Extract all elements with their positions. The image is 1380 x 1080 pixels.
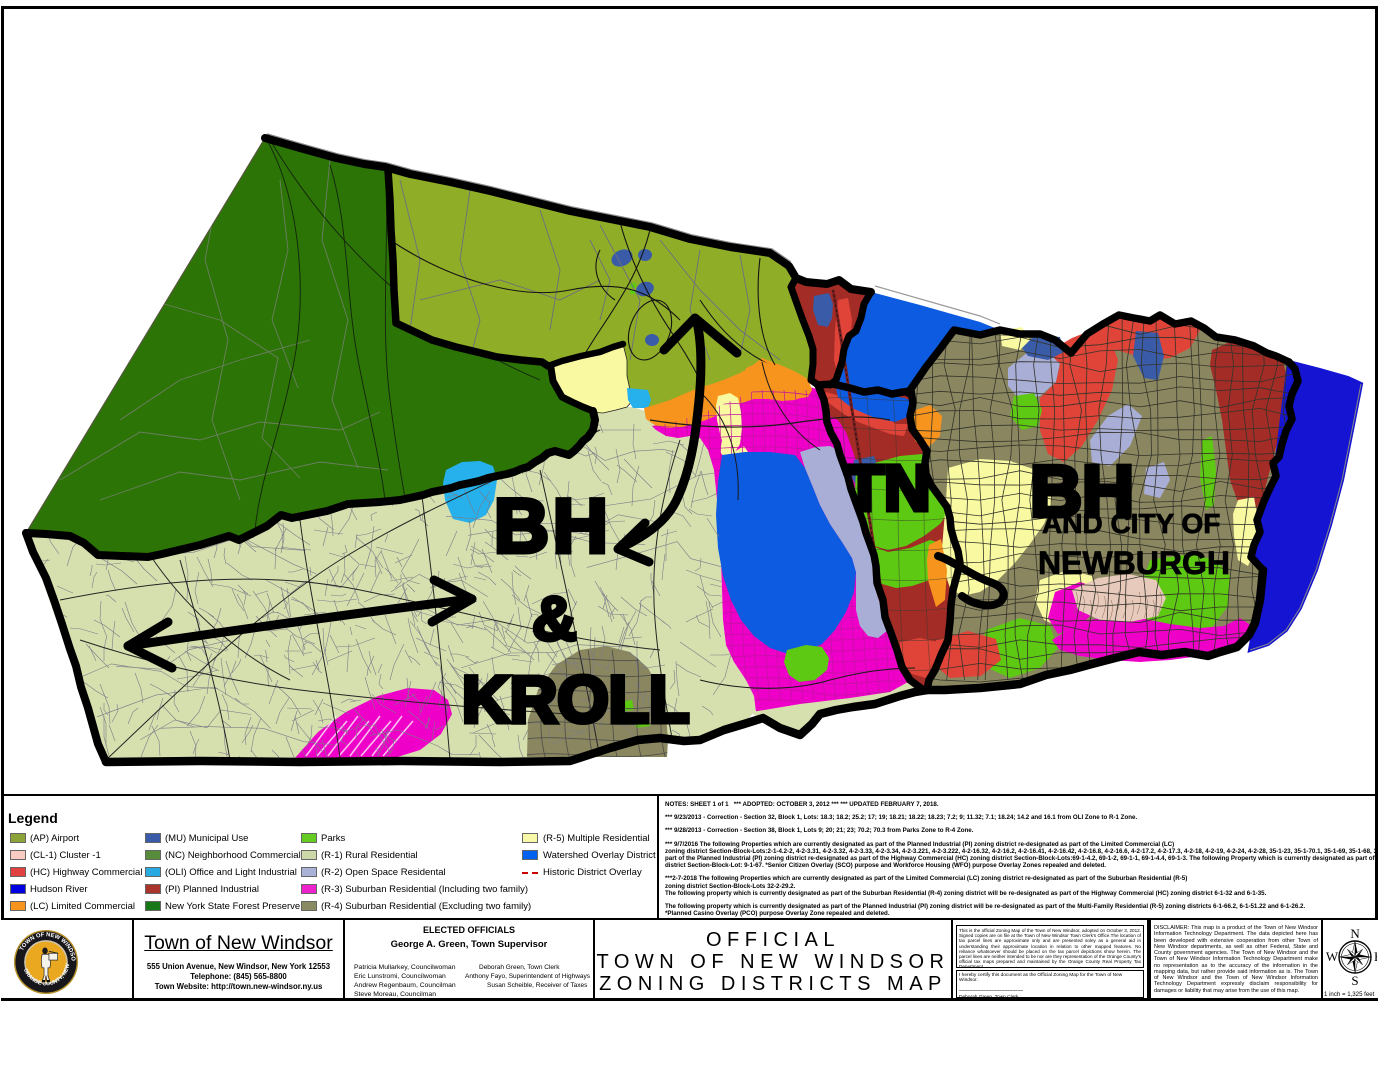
- svg-text:E: E: [1374, 949, 1377, 964]
- svg-text:AND CITY OF: AND CITY OF: [1042, 508, 1220, 539]
- svg-text:&: &: [532, 585, 577, 654]
- svg-text:1 inch = 1,325 feet: 1 inch = 1,325 feet: [1324, 991, 1375, 998]
- svg-text:N: N: [1350, 926, 1360, 941]
- svg-text:KROLL: KROLL: [462, 662, 689, 736]
- svg-text:TN: TN: [845, 452, 930, 524]
- svg-text:W: W: [1326, 949, 1339, 964]
- svg-text:NEWBURGH: NEWBURGH: [1038, 545, 1230, 581]
- svg-text:BH: BH: [494, 484, 612, 569]
- svg-text:S: S: [1351, 973, 1358, 988]
